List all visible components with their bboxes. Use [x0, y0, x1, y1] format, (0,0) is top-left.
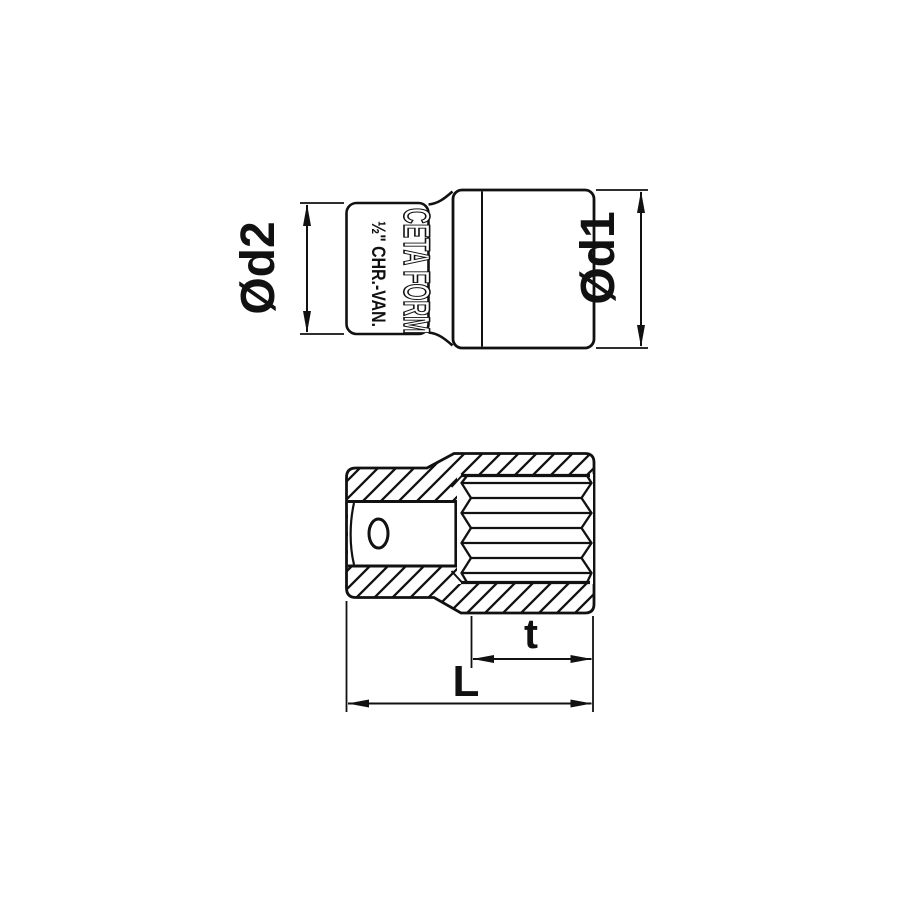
dim-t-arrow-right [571, 655, 593, 663]
square-drive-cavity [348, 500, 456, 568]
dim-l-arrow-left [348, 700, 370, 708]
neck-bottom-curve [429, 333, 453, 346]
drive-cavity-fill [348, 502, 456, 567]
dim-d2-label: Ød2 [232, 221, 285, 314]
spec-marking-text: ½" CHR.-VAN. [367, 221, 389, 327]
dim-d1-arrow-up [637, 191, 645, 213]
ball-detent-hole [369, 519, 388, 548]
dim-l-arrow-right [571, 700, 593, 708]
dim-d2: Ød2 [232, 203, 344, 334]
brand-marking-text: CETA FORM [396, 208, 437, 334]
socket-technical-drawing: CETA FORM ½" CHR.-VAN. Ød2 Ød1 [0, 0, 900, 900]
neck-top-curve [429, 192, 453, 205]
dim-l-label: L [453, 657, 480, 706]
dim-d1-label: Ød1 [572, 211, 625, 304]
technical-drawing-page: CETA FORM ½" CHR.-VAN. Ød2 Ød1 [0, 0, 900, 900]
side-view: CETA FORM ½" CHR.-VAN. Ød2 Ød1 [232, 190, 648, 348]
dim-t: t [472, 610, 594, 712]
dim-d2-arrow-down [303, 311, 311, 333]
section-view: t L [347, 454, 595, 713]
bihex-cavity [452, 474, 594, 584]
dim-l: L [347, 601, 593, 712]
dim-d1-arrow-down [637, 325, 645, 347]
dim-t-label: t [524, 610, 538, 657]
dim-d2-arrow-up [303, 204, 311, 226]
